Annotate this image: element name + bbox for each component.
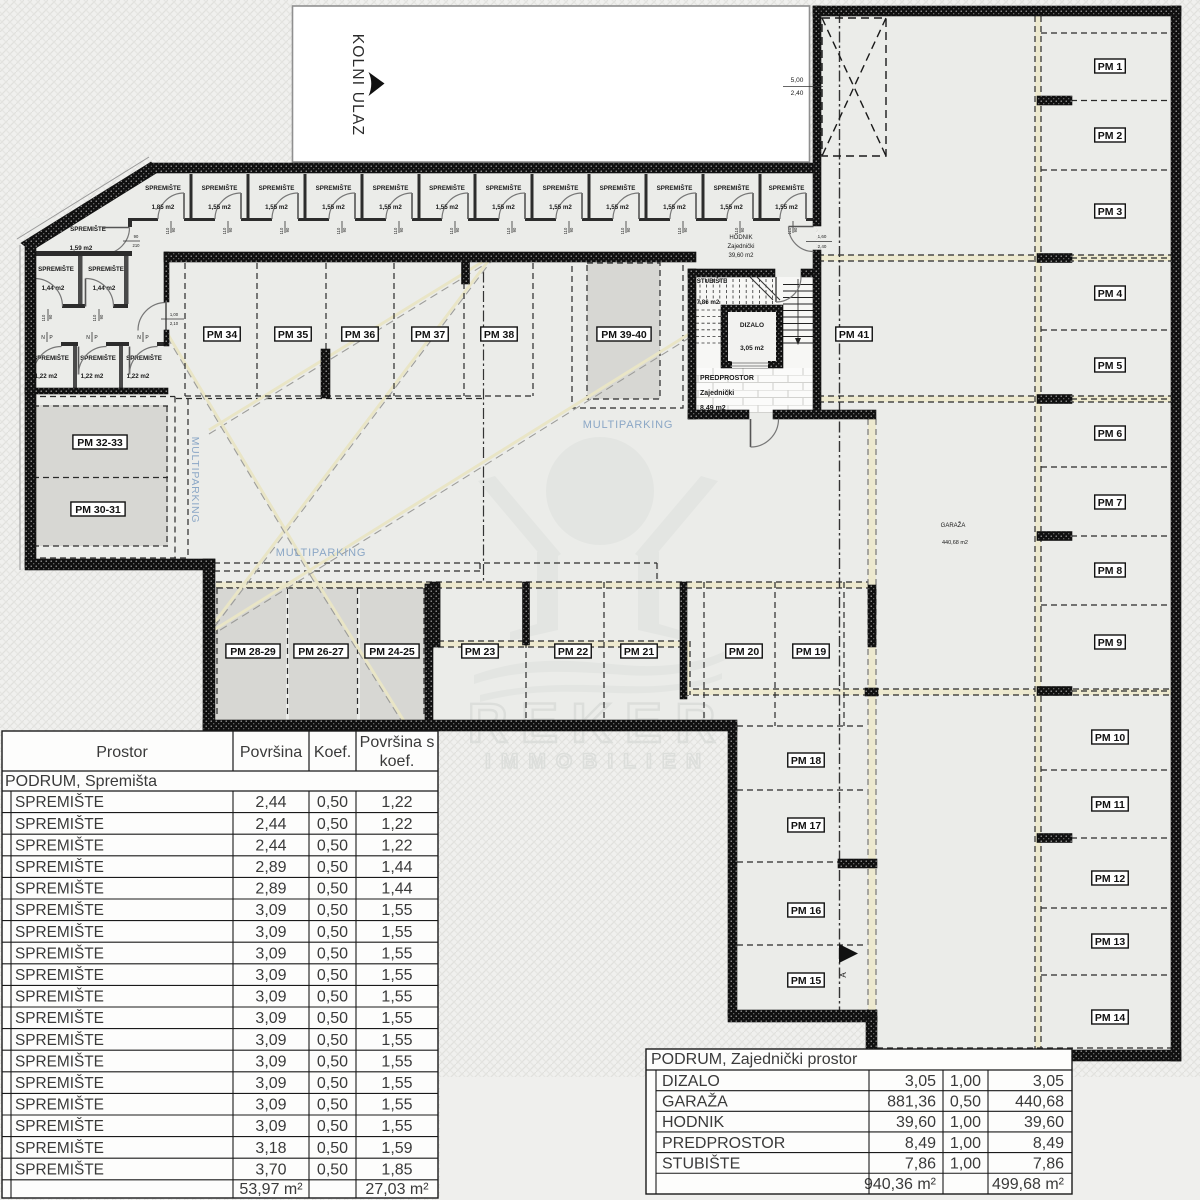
svg-text:PM 30-31: PM 30-31 bbox=[75, 504, 121, 516]
svg-text:39,60: 39,60 bbox=[896, 1114, 936, 1131]
svg-text:8,49: 8,49 bbox=[905, 1135, 936, 1152]
svg-text:90: 90 bbox=[134, 234, 139, 239]
svg-text:Prostor: Prostor bbox=[96, 744, 148, 761]
svg-text:3,09: 3,09 bbox=[255, 924, 286, 941]
svg-text:39,60: 39,60 bbox=[1024, 1114, 1064, 1131]
svg-text:SPREMIŠTE: SPREMIŠTE bbox=[15, 1140, 104, 1157]
svg-text:SPREMIŠTE: SPREMIŠTE bbox=[714, 184, 750, 192]
svg-text:90: 90 bbox=[793, 227, 798, 232]
svg-text:2,40: 2,40 bbox=[791, 90, 804, 97]
svg-text:PM 15: PM 15 bbox=[791, 975, 822, 987]
svg-text:0,50: 0,50 bbox=[317, 1140, 348, 1157]
svg-text:SPREMIŠTE: SPREMIŠTE bbox=[15, 794, 104, 811]
svg-text:SPREMIŠTE: SPREMIŠTE bbox=[70, 225, 106, 233]
svg-text:0,50: 0,50 bbox=[317, 967, 348, 984]
svg-text:1,55: 1,55 bbox=[381, 1010, 412, 1027]
svg-text:SPREMIŠTE: SPREMIŠTE bbox=[373, 184, 409, 192]
svg-text:1,44: 1,44 bbox=[381, 881, 412, 898]
svg-text:39,60 m2: 39,60 m2 bbox=[728, 253, 754, 259]
svg-text:1,00: 1,00 bbox=[950, 1114, 981, 1131]
svg-text:SPREMIŠTE: SPREMIŠTE bbox=[15, 1161, 104, 1178]
svg-text:SPREMIŠTE: SPREMIŠTE bbox=[15, 816, 104, 833]
svg-text:SPREMIŠTE: SPREMIŠTE bbox=[15, 1010, 104, 1027]
svg-text:0,50: 0,50 bbox=[317, 1097, 348, 1114]
svg-text:PM 13: PM 13 bbox=[1095, 936, 1126, 948]
svg-text:3,09: 3,09 bbox=[255, 1075, 286, 1092]
svg-text:HODNIK: HODNIK bbox=[729, 235, 752, 241]
svg-text:110: 110 bbox=[279, 227, 284, 234]
svg-text:2,10: 2,10 bbox=[170, 321, 179, 326]
svg-text:SPREMIŠTE: SPREMIŠTE bbox=[202, 184, 238, 192]
svg-text:SPREMIŠTE: SPREMIŠTE bbox=[15, 1075, 104, 1092]
svg-text:0,50: 0,50 bbox=[317, 989, 348, 1006]
svg-text:90: 90 bbox=[228, 227, 233, 232]
svg-text:90: 90 bbox=[626, 227, 631, 232]
svg-text:PM 41: PM 41 bbox=[839, 329, 870, 341]
svg-text:PM 21: PM 21 bbox=[624, 646, 655, 658]
svg-text:PODRUM, Spremišta: PODRUM, Spremišta bbox=[5, 773, 157, 790]
svg-text:PM 37: PM 37 bbox=[415, 329, 446, 341]
svg-text:90: 90 bbox=[512, 227, 517, 232]
svg-text:IMMOBILIEN: IMMOBILIEN bbox=[485, 750, 711, 773]
svg-text:110: 110 bbox=[677, 227, 682, 234]
svg-text:koef.: koef. bbox=[380, 753, 415, 770]
svg-text:MULTIPARKING: MULTIPARKING bbox=[276, 547, 366, 559]
svg-text:Koef.: Koef. bbox=[314, 744, 351, 761]
svg-text:110: 110 bbox=[92, 314, 97, 321]
svg-text:3,05: 3,05 bbox=[905, 1073, 936, 1090]
svg-text:1,00: 1,00 bbox=[950, 1073, 981, 1090]
svg-text:STUBIŠTE: STUBIŠTE bbox=[697, 277, 728, 285]
svg-text:SPREMIŠTE: SPREMIŠTE bbox=[15, 967, 104, 984]
svg-text:2,44: 2,44 bbox=[255, 816, 286, 833]
svg-text:1,55: 1,55 bbox=[381, 1097, 412, 1114]
svg-text:110: 110 bbox=[222, 227, 227, 234]
svg-text:110: 110 bbox=[165, 227, 170, 234]
svg-text:1,55 m2: 1,55 m2 bbox=[775, 204, 798, 211]
svg-text:1,55 m2: 1,55 m2 bbox=[379, 204, 402, 211]
svg-text:PM 20: PM 20 bbox=[729, 646, 760, 658]
svg-text:499,68 m²: 499,68 m² bbox=[992, 1176, 1065, 1193]
svg-text:N: N bbox=[41, 335, 45, 341]
svg-text:90: 90 bbox=[399, 227, 404, 232]
svg-text:3,18: 3,18 bbox=[255, 1140, 286, 1157]
svg-text:110: 110 bbox=[563, 227, 568, 234]
svg-text:SPREMIŠTE: SPREMIŠTE bbox=[15, 902, 104, 919]
svg-text:N: N bbox=[86, 335, 90, 341]
svg-text:0,50: 0,50 bbox=[317, 1118, 348, 1135]
svg-text:2,44: 2,44 bbox=[255, 794, 286, 811]
svg-text:PM 17: PM 17 bbox=[791, 820, 822, 832]
svg-text:7,86: 7,86 bbox=[1033, 1155, 1064, 1172]
svg-text:1,55 m2: 1,55 m2 bbox=[492, 204, 515, 211]
svg-text:Zajednički: Zajednički bbox=[727, 244, 754, 250]
svg-text:PREDPROSTOR: PREDPROSTOR bbox=[662, 1135, 785, 1152]
svg-text:PM 32-33: PM 32-33 bbox=[77, 437, 123, 449]
svg-text:0,50: 0,50 bbox=[317, 902, 348, 919]
svg-text:PM 10: PM 10 bbox=[1095, 732, 1126, 744]
svg-text:DIZALO: DIZALO bbox=[662, 1073, 720, 1090]
svg-text:PM 6: PM 6 bbox=[1098, 428, 1123, 440]
svg-text:SPREMIŠTE: SPREMIŠTE bbox=[15, 881, 104, 898]
svg-text:1,60: 1,60 bbox=[818, 234, 827, 239]
svg-text:PM 8: PM 8 bbox=[1098, 565, 1123, 577]
svg-text:110: 110 bbox=[620, 227, 625, 234]
svg-text:2,40: 2,40 bbox=[818, 244, 827, 249]
svg-text:1,22: 1,22 bbox=[381, 816, 412, 833]
svg-text:1,55: 1,55 bbox=[381, 945, 412, 962]
svg-text:0,50: 0,50 bbox=[317, 1075, 348, 1092]
svg-text:881,36: 881,36 bbox=[887, 1093, 936, 1110]
svg-text:110: 110 bbox=[449, 227, 454, 234]
svg-text:5,00: 5,00 bbox=[791, 77, 804, 84]
svg-text:1,55: 1,55 bbox=[381, 967, 412, 984]
svg-text:1,85: 1,85 bbox=[381, 1161, 412, 1178]
svg-text:MULTIPARKING: MULTIPARKING bbox=[189, 437, 201, 524]
svg-text:90: 90 bbox=[285, 227, 290, 232]
svg-text:0,50: 0,50 bbox=[317, 1161, 348, 1178]
svg-text:PM 36: PM 36 bbox=[345, 329, 376, 341]
svg-text:PM 38: PM 38 bbox=[484, 329, 515, 341]
svg-text:PM 14: PM 14 bbox=[1095, 1012, 1126, 1024]
svg-text:PM 5: PM 5 bbox=[1098, 360, 1123, 372]
svg-text:SPREMIŠTE: SPREMIŠTE bbox=[15, 859, 104, 876]
svg-text:SPREMIŠTE: SPREMIŠTE bbox=[15, 1097, 104, 1114]
svg-text:110: 110 bbox=[506, 227, 511, 234]
svg-text:1,44: 1,44 bbox=[381, 859, 412, 876]
svg-text:0,50: 0,50 bbox=[317, 816, 348, 833]
svg-text:PM 4: PM 4 bbox=[1098, 288, 1123, 300]
svg-text:1,00: 1,00 bbox=[170, 312, 179, 317]
svg-text:440,68: 440,68 bbox=[1015, 1093, 1064, 1110]
svg-text:PM 23: PM 23 bbox=[465, 646, 496, 658]
svg-text:PM 34: PM 34 bbox=[207, 329, 238, 341]
svg-text:PM 9: PM 9 bbox=[1098, 637, 1123, 649]
svg-text:7,86 m2: 7,86 m2 bbox=[697, 299, 720, 306]
svg-text:1,55: 1,55 bbox=[381, 1118, 412, 1135]
svg-text:1,55 m2: 1,55 m2 bbox=[322, 204, 345, 211]
svg-text:STUBIŠTE: STUBIŠTE bbox=[662, 1153, 740, 1172]
svg-text:1,55: 1,55 bbox=[381, 1075, 412, 1092]
svg-text:8,49: 8,49 bbox=[1033, 1135, 1064, 1152]
svg-text:MULTIPARKING: MULTIPARKING bbox=[583, 419, 673, 431]
svg-text:1,22: 1,22 bbox=[381, 837, 412, 854]
svg-text:3,09: 3,09 bbox=[255, 945, 286, 962]
svg-text:27,03 m²: 27,03 m² bbox=[365, 1181, 429, 1198]
svg-text:90: 90 bbox=[342, 227, 347, 232]
svg-text:SPREMIŠTE: SPREMIŠTE bbox=[15, 1118, 104, 1135]
svg-text:3,05 m2: 3,05 m2 bbox=[740, 345, 764, 352]
svg-text:PM 16: PM 16 bbox=[791, 905, 822, 917]
svg-text:0,50: 0,50 bbox=[317, 1053, 348, 1070]
svg-text:PM 1: PM 1 bbox=[1098, 61, 1123, 73]
svg-text:440,68 m2: 440,68 m2 bbox=[942, 540, 968, 546]
svg-text:1,55: 1,55 bbox=[381, 924, 412, 941]
svg-text:PM 24-25: PM 24-25 bbox=[369, 646, 415, 658]
svg-text:SPREMIŠTE: SPREMIŠTE bbox=[543, 184, 579, 192]
svg-text:SPREMIŠTE: SPREMIŠTE bbox=[429, 184, 465, 192]
svg-text:110: 110 bbox=[41, 314, 46, 321]
svg-text:SPREMIŠTE: SPREMIŠTE bbox=[486, 184, 522, 192]
svg-text:PM 3: PM 3 bbox=[1098, 206, 1123, 218]
svg-text:3,09: 3,09 bbox=[255, 967, 286, 984]
svg-text:0,50: 0,50 bbox=[317, 881, 348, 898]
svg-text:1,22: 1,22 bbox=[381, 794, 412, 811]
svg-text:3,09: 3,09 bbox=[255, 1010, 286, 1027]
svg-text:1,55: 1,55 bbox=[381, 1032, 412, 1049]
svg-text:KOLNI ULAZ: KOLNI ULAZ bbox=[349, 34, 366, 136]
svg-text:PM 19: PM 19 bbox=[796, 646, 827, 658]
svg-text:7,86: 7,86 bbox=[905, 1155, 936, 1172]
svg-text:1,59: 1,59 bbox=[381, 1140, 412, 1157]
svg-text:1,55 m2: 1,55 m2 bbox=[436, 204, 459, 211]
svg-text:PM 22: PM 22 bbox=[558, 646, 589, 658]
svg-text:53,97 m²: 53,97 m² bbox=[239, 1181, 303, 1198]
svg-text:1,55: 1,55 bbox=[381, 989, 412, 1006]
svg-text:0,50: 0,50 bbox=[950, 1093, 981, 1110]
svg-text:1,55 m2: 1,55 m2 bbox=[606, 204, 629, 211]
svg-text:1,55: 1,55 bbox=[381, 902, 412, 919]
svg-text:110: 110 bbox=[393, 227, 398, 234]
svg-text:SPREMIŠTE: SPREMIŠTE bbox=[126, 354, 162, 362]
svg-text:Zajednički: Zajednički bbox=[700, 390, 734, 397]
svg-text:2,44: 2,44 bbox=[255, 837, 286, 854]
svg-text:3,09: 3,09 bbox=[255, 1032, 286, 1049]
svg-text:0,50: 0,50 bbox=[317, 945, 348, 962]
svg-text:SPREMIŠTE: SPREMIŠTE bbox=[316, 184, 352, 192]
svg-text:GARAŽA: GARAŽA bbox=[941, 521, 966, 529]
svg-text:2,89: 2,89 bbox=[255, 881, 286, 898]
svg-text:3,09: 3,09 bbox=[255, 989, 286, 1006]
svg-text:SPREMIŠTE: SPREMIŠTE bbox=[15, 945, 104, 962]
svg-text:A: A bbox=[839, 972, 848, 978]
svg-text:SPREMIŠTE: SPREMIŠTE bbox=[88, 265, 124, 273]
svg-text:1,22 m2: 1,22 m2 bbox=[81, 373, 104, 380]
svg-text:SPREMIŠTE: SPREMIŠTE bbox=[769, 184, 805, 192]
svg-text:1,55 m2: 1,55 m2 bbox=[720, 204, 743, 211]
svg-text:PM 12: PM 12 bbox=[1095, 873, 1126, 885]
svg-text:1,55 m2: 1,55 m2 bbox=[208, 204, 231, 211]
svg-text:1,55 m2: 1,55 m2 bbox=[549, 204, 572, 211]
svg-text:PM 26-27: PM 26-27 bbox=[298, 646, 344, 658]
svg-text:SPREMIŠTE: SPREMIŠTE bbox=[600, 184, 636, 192]
svg-text:0,50: 0,50 bbox=[317, 924, 348, 941]
svg-text:1,00: 1,00 bbox=[950, 1135, 981, 1152]
svg-text:0,50: 0,50 bbox=[317, 837, 348, 854]
svg-text:90: 90 bbox=[99, 314, 104, 319]
svg-text:DIZALO: DIZALO bbox=[740, 322, 764, 329]
svg-text:SPREMIŠTE: SPREMIŠTE bbox=[657, 184, 693, 192]
svg-text:90: 90 bbox=[171, 227, 176, 232]
svg-text:1,85 m2: 1,85 m2 bbox=[152, 204, 175, 211]
svg-text:1,22 m2: 1,22 m2 bbox=[35, 373, 58, 380]
svg-text:GARAŽA: GARAŽA bbox=[662, 1091, 728, 1110]
svg-text:1,59 m2: 1,59 m2 bbox=[70, 245, 93, 252]
svg-text:PM 7: PM 7 bbox=[1098, 497, 1123, 509]
svg-text:3,70: 3,70 bbox=[255, 1161, 286, 1178]
svg-text:90: 90 bbox=[48, 314, 53, 319]
svg-text:PM 35: PM 35 bbox=[278, 329, 309, 341]
svg-text:1,55: 1,55 bbox=[381, 1053, 412, 1070]
svg-text:0,50: 0,50 bbox=[317, 1010, 348, 1027]
svg-text:PREDPROSTOR: PREDPROSTOR bbox=[700, 375, 754, 382]
svg-text:0,50: 0,50 bbox=[317, 859, 348, 876]
svg-text:SPREMIŠTE: SPREMIŠTE bbox=[259, 184, 295, 192]
svg-text:SPREMIŠTE: SPREMIŠTE bbox=[15, 1032, 104, 1049]
svg-text:Površina: Površina bbox=[240, 744, 302, 761]
svg-text:2,89: 2,89 bbox=[255, 859, 286, 876]
svg-text:110: 110 bbox=[734, 227, 739, 234]
svg-text:PM 11: PM 11 bbox=[1095, 799, 1125, 811]
svg-text:PM 28-29: PM 28-29 bbox=[230, 646, 276, 658]
svg-text:N: N bbox=[137, 335, 141, 341]
svg-text:SPREMIŠTE: SPREMIŠTE bbox=[15, 989, 104, 1006]
svg-text:3,05: 3,05 bbox=[1033, 1073, 1064, 1090]
svg-text:PM 39-40: PM 39-40 bbox=[601, 329, 647, 341]
svg-text:1,00: 1,00 bbox=[950, 1155, 981, 1172]
svg-text:Površina s: Površina s bbox=[360, 734, 435, 751]
svg-text:HODNIK: HODNIK bbox=[662, 1114, 725, 1131]
svg-text:3,09: 3,09 bbox=[255, 1118, 286, 1135]
svg-text:90: 90 bbox=[569, 227, 574, 232]
svg-text:90: 90 bbox=[740, 227, 745, 232]
svg-text:PM 2: PM 2 bbox=[1098, 130, 1123, 142]
svg-text:90: 90 bbox=[455, 227, 460, 232]
svg-text:110: 110 bbox=[336, 227, 341, 234]
svg-text:SPREMIŠTE: SPREMIŠTE bbox=[15, 1053, 104, 1070]
svg-text:940,36 m²: 940,36 m² bbox=[864, 1176, 937, 1193]
svg-text:PODRUM, Zajednički prostor: PODRUM, Zajednički prostor bbox=[651, 1051, 858, 1068]
svg-text:PM 18: PM 18 bbox=[791, 755, 822, 767]
svg-text:90: 90 bbox=[683, 227, 688, 232]
svg-text:0,50: 0,50 bbox=[317, 794, 348, 811]
svg-text:3,09: 3,09 bbox=[255, 1053, 286, 1070]
svg-text:210: 210 bbox=[133, 243, 141, 248]
svg-text:1,55 m2: 1,55 m2 bbox=[265, 204, 288, 211]
svg-text:SPREMIŠTE: SPREMIŠTE bbox=[15, 924, 104, 941]
svg-text:1,55 m2: 1,55 m2 bbox=[663, 204, 686, 211]
svg-text:SPREMIŠTE: SPREMIŠTE bbox=[145, 184, 181, 192]
svg-text:3,09: 3,09 bbox=[255, 902, 286, 919]
svg-text:SPREMIŠTE: SPREMIŠTE bbox=[38, 265, 74, 273]
svg-text:0,50: 0,50 bbox=[317, 1032, 348, 1049]
svg-text:SPREMIŠTE: SPREMIŠTE bbox=[15, 837, 104, 854]
svg-text:3,09: 3,09 bbox=[255, 1097, 286, 1114]
